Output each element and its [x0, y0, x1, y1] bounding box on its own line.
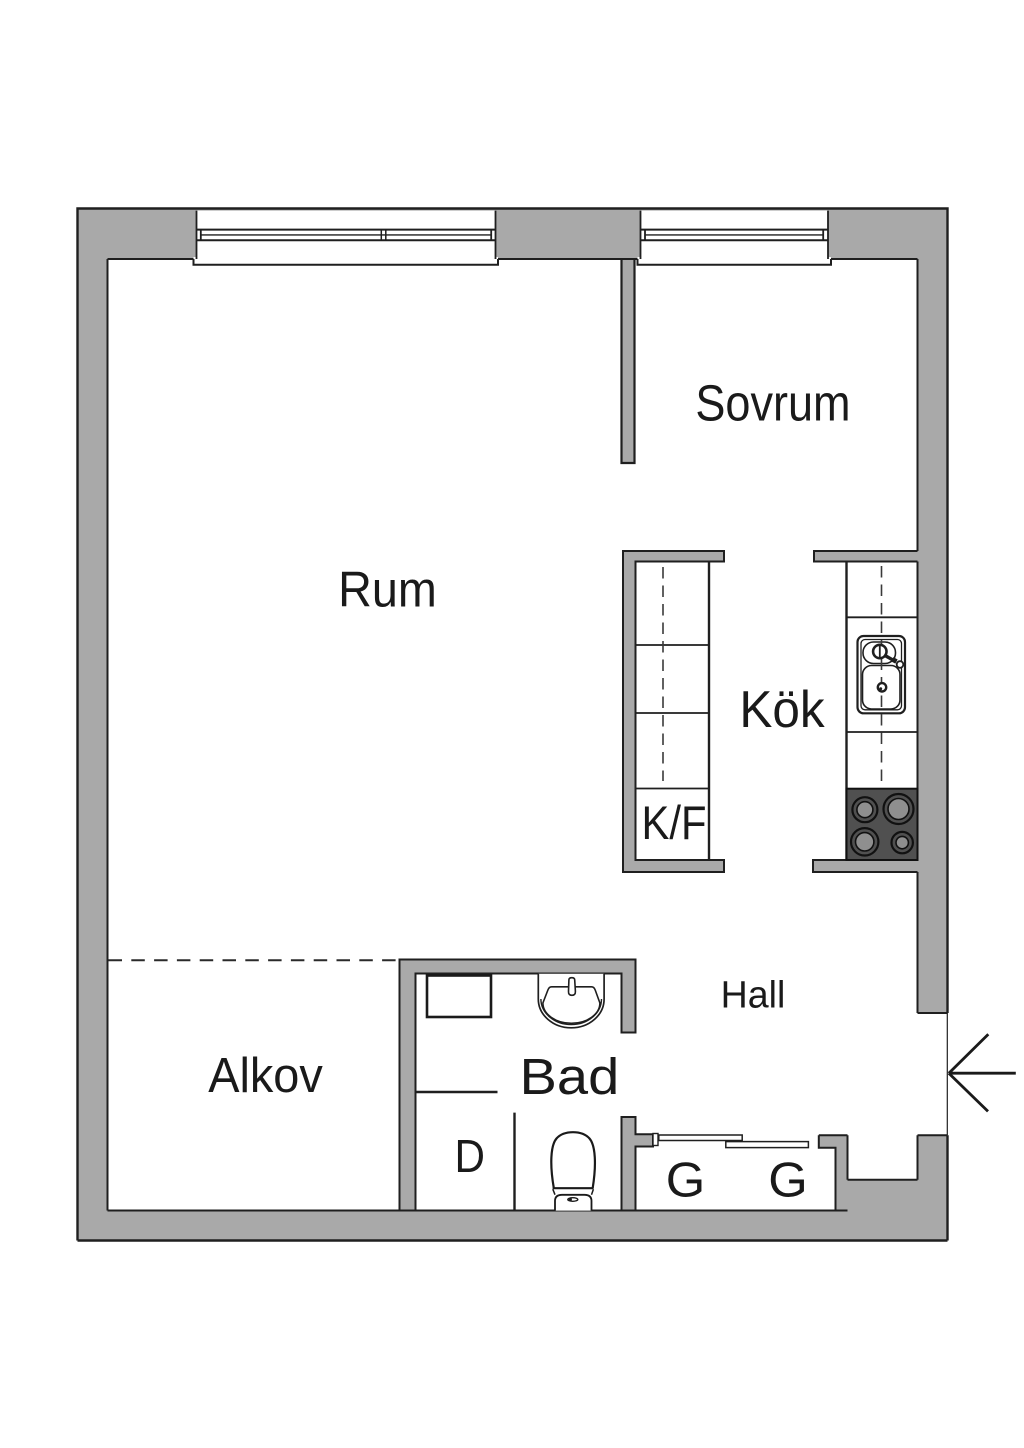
svg-text:G: G	[768, 1154, 808, 1208]
svg-text:G: G	[666, 1154, 706, 1208]
svg-text:Alkov: Alkov	[208, 1049, 323, 1103]
svg-text:Bad: Bad	[520, 1048, 620, 1105]
svg-text:D: D	[454, 1130, 485, 1182]
svg-text:Hall: Hall	[721, 974, 786, 1016]
svg-text:Sovrum: Sovrum	[695, 375, 850, 432]
svg-text:K/F: K/F	[642, 796, 707, 849]
svg-text:Rum: Rum	[338, 562, 437, 618]
svg-text:Kök: Kök	[739, 681, 825, 739]
